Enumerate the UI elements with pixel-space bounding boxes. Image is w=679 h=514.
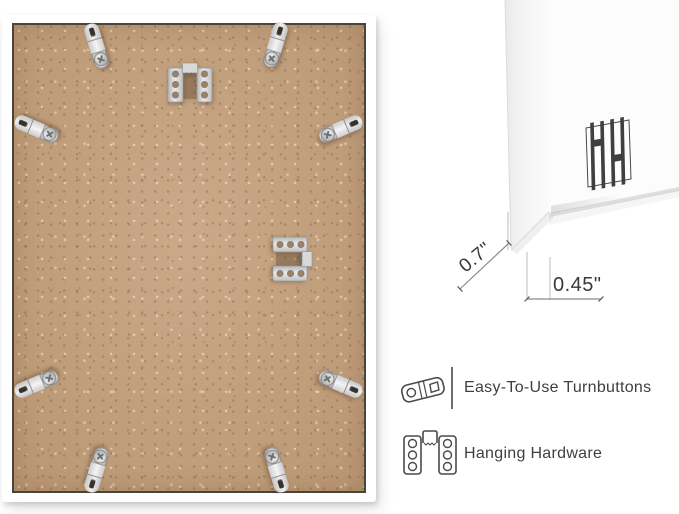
dimension-label-depth: 0.7": [455, 238, 496, 276]
dimension-face-width: 0.45": [525, 252, 604, 302]
turnbutton-icon: [396, 363, 464, 413]
feature-label-hanging-hardware: Hanging Hardware: [464, 445, 602, 463]
feature-turnbuttons: Easy-To-Use Turnbuttons: [396, 362, 676, 414]
frame-back-photo: [2, 15, 376, 502]
dimension-label-face-width: 0.45": [553, 274, 602, 296]
frame-front-face: [549, 0, 679, 213]
mdf-backing-board: [12, 23, 366, 493]
frame-side-profile: [505, 0, 549, 250]
feature-hanging-hardware: Hanging Hardware: [396, 428, 676, 480]
dimension-depth: 0.7": [455, 212, 511, 292]
feature-label-turnbuttons: Easy-To-Use Turnbuttons: [464, 379, 651, 397]
hanging-hardware-icon: [396, 426, 464, 482]
brand-logo-hh: [586, 117, 631, 190]
frame-miter-corner: [511, 211, 554, 254]
